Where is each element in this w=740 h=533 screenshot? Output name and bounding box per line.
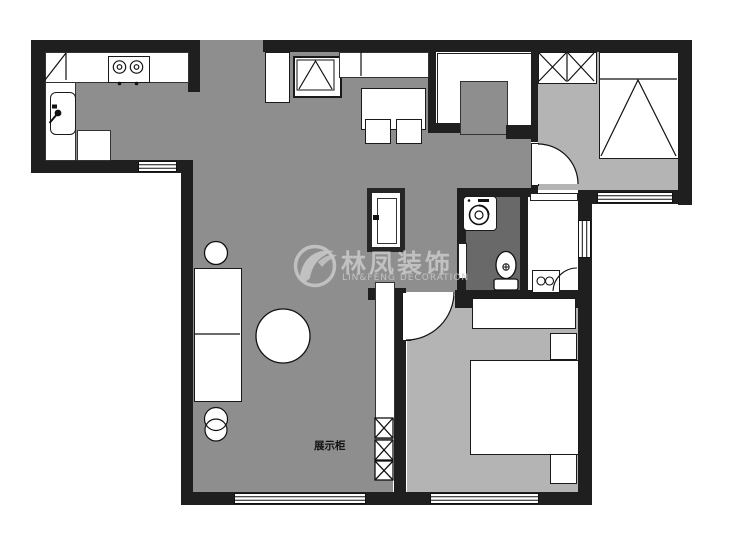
window-bedroom1	[430, 493, 539, 504]
sofa	[194, 268, 242, 402]
washing-machine-icon	[463, 196, 497, 231]
nightstand-top	[550, 333, 577, 360]
stove-icon	[108, 56, 150, 83]
dining-stool-1	[365, 119, 391, 144]
window-bedroom2	[597, 192, 673, 203]
wall-right-upper	[678, 40, 692, 205]
refrigerator-panel	[377, 198, 397, 244]
wardrobe-bedroom1	[472, 298, 576, 329]
display-cabinet-label: 展示柜	[314, 438, 346, 453]
wall-dining-niche	[428, 52, 436, 131]
wall-niche-stub-left	[428, 123, 460, 133]
window-kitchen	[138, 161, 177, 172]
wall-top-main	[263, 40, 692, 52]
wall-kitchen-right-stub	[188, 52, 200, 92]
window-living	[234, 493, 366, 504]
bed-top-right	[599, 52, 679, 159]
door-leaf-bedroom2	[531, 143, 539, 186]
wall-bathroom-washroom	[520, 197, 528, 293]
wardrobe-x-icon	[538, 52, 597, 84]
wall-main-left	[181, 160, 193, 505]
floor-plan: 展示柜	[0, 0, 740, 533]
display-cabinet-body	[375, 282, 395, 420]
niche-block	[460, 81, 508, 135]
cabinet-triangle-icon	[293, 56, 342, 98]
door-leaf-bedroom1	[402, 292, 411, 341]
entry-counter	[339, 52, 429, 78]
kitchen-cabinet-block	[77, 130, 111, 161]
dining-stool-2	[396, 119, 422, 144]
double-bed-bedroom1	[470, 360, 579, 455]
sink-icon	[50, 92, 76, 135]
bathroom-sliding-door	[458, 243, 467, 279]
wall-kitchen-left	[31, 40, 45, 173]
wall-bedroom2-left	[531, 52, 538, 142]
window-washroom	[578, 220, 591, 258]
nightstand-bottom	[550, 454, 577, 484]
vanity-basin-icon	[532, 270, 560, 293]
shoe-cabinet	[265, 52, 290, 103]
washroom-door-track	[530, 193, 578, 201]
wall-top-kitchen	[31, 40, 200, 52]
